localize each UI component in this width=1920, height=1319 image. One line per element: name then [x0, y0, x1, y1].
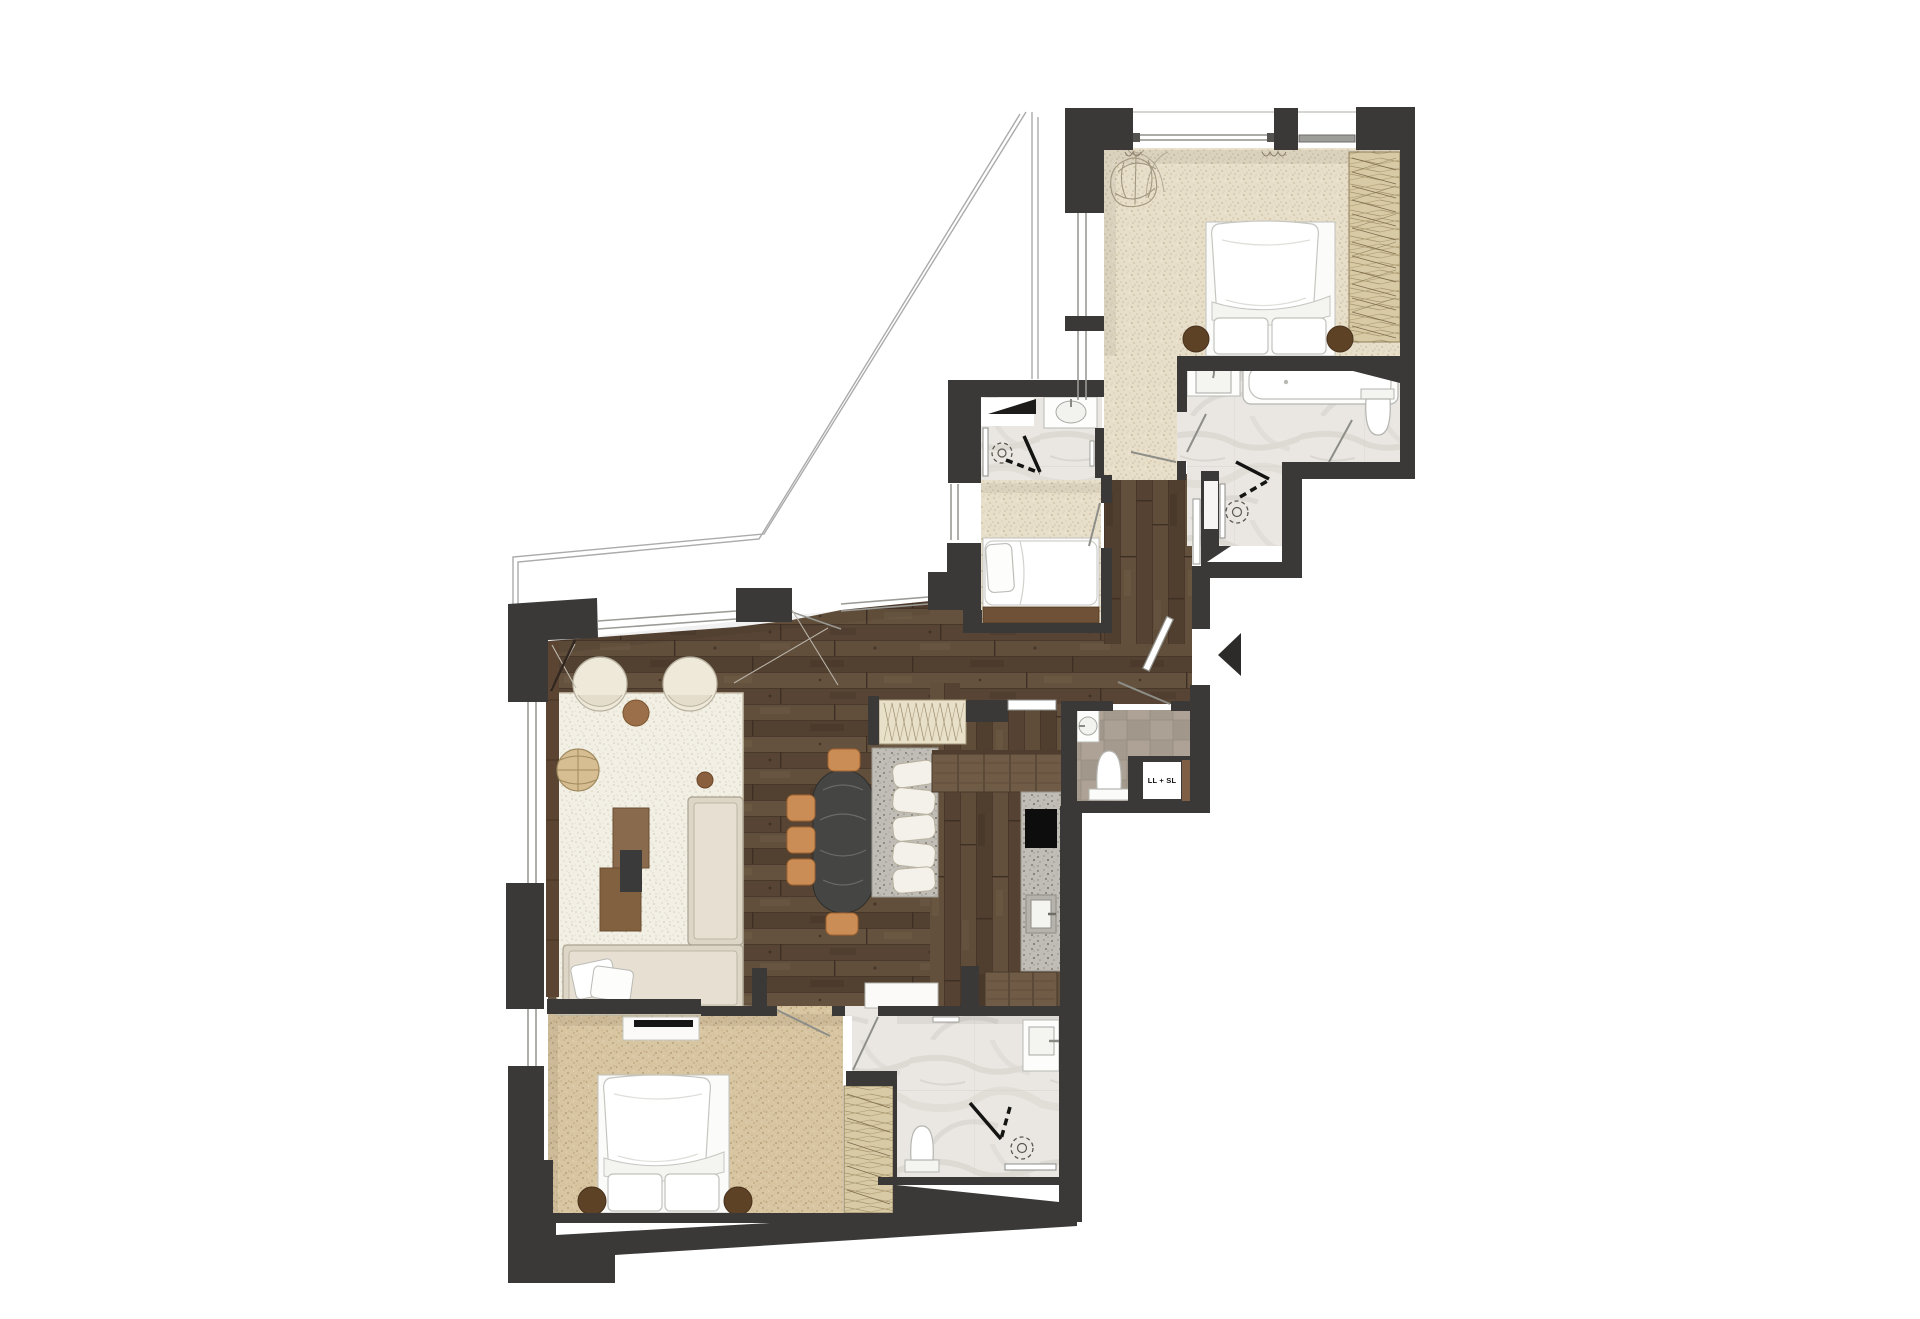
svg-text:LL + SL: LL + SL	[1148, 776, 1177, 785]
